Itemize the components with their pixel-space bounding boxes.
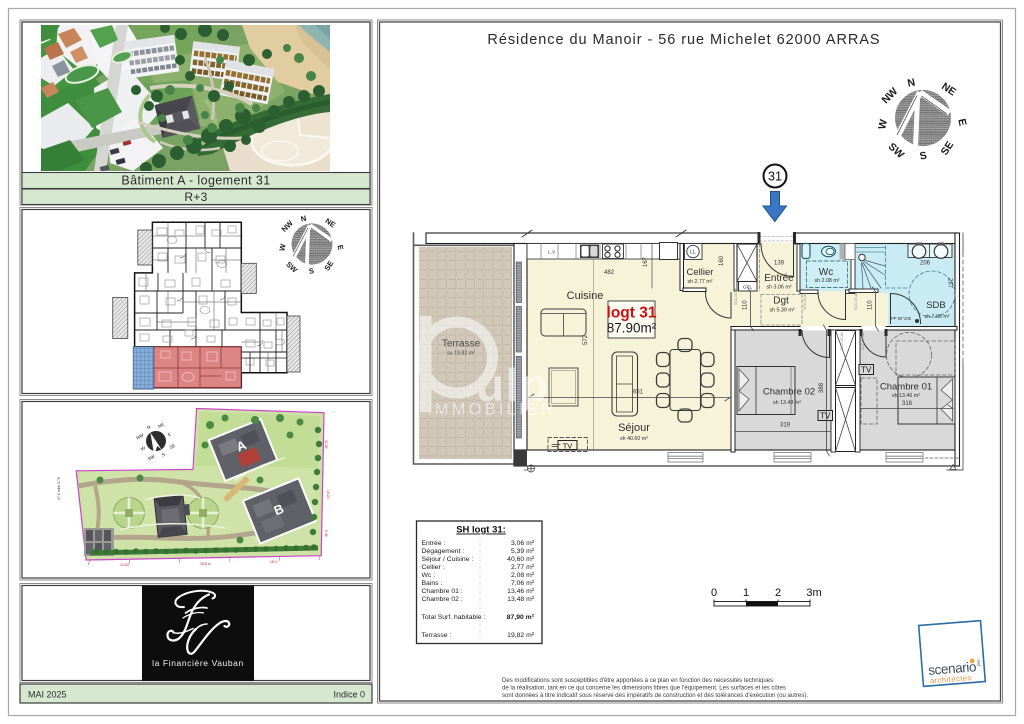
svg-text:Indice 0: Indice 0 [333, 690, 365, 700]
svg-text:SCC-06 dd: SCC-06 dd [861, 333, 865, 350]
svg-text:316: 316 [902, 401, 913, 407]
svg-text:167: 167 [643, 256, 649, 267]
svg-text:Chambre 02 :: Chambre 02 : [422, 596, 463, 603]
svg-text:SH logt 31:: SH logt 31: [456, 525, 506, 536]
svg-text:Wc :: Wc : [422, 572, 436, 579]
svg-text:IMMOBILIER: IMMOBILIER [427, 401, 556, 419]
svg-text:Dgt: Dgt [773, 296, 789, 307]
svg-text:206: 206 [920, 261, 931, 267]
svg-text:sh 13.46 m²: sh 13.46 m² [892, 393, 920, 399]
svg-text:25.8 m: 25.8 m [200, 562, 211, 566]
svg-text:Terrasse :: Terrasse : [422, 632, 452, 639]
svg-text:TV: TV [820, 412, 831, 421]
svg-text:sh 2.77 m²: sh 2.77 m² [687, 279, 712, 285]
svg-text:PP 90°205: PP 90°205 [891, 316, 912, 321]
svg-text:Bâtiment A - logement 31: Bâtiment A - logement 31 [121, 174, 270, 188]
svg-text:TV: TV [563, 441, 573, 450]
svg-text:388: 388 [819, 382, 825, 393]
svg-text:139: 139 [774, 261, 785, 267]
svg-text:Chambre 01: Chambre 01 [880, 382, 932, 393]
svg-text:LL: LL [690, 250, 696, 256]
svg-text:Entrée: Entrée [764, 273, 794, 284]
svg-text:Bains :: Bains : [422, 580, 443, 587]
svg-text:2,77 m²: 2,77 m² [511, 564, 535, 571]
svg-text:SDB: SDB [926, 300, 946, 311]
svg-text:Cellier: Cellier [687, 267, 714, 278]
svg-text:SCC-06 dd: SCC-06 dd [854, 293, 858, 310]
svg-text:110: 110 [743, 300, 749, 310]
svg-text:2,08 m²: 2,08 m² [511, 572, 535, 579]
svg-text:de la réalisation, tant en ce: de la réalisation, tant en ce qui concer… [502, 686, 786, 692]
svg-text:Résidence du Manoir - 56 rue M: Résidence du Manoir - 56 rue Michelet 62… [487, 32, 880, 48]
svg-text:sh 13.48 m²: sh 13.48 m² [773, 400, 801, 406]
svg-text:572: 572 [583, 334, 589, 345]
svg-text:L.V: L.V [548, 250, 556, 256]
svg-text:pro: pro [976, 659, 982, 666]
svg-text:19,82 m²: 19,82 m² [507, 632, 535, 639]
svg-text:1: 1 [743, 587, 749, 599]
svg-text:87,90 m²: 87,90 m² [507, 614, 535, 621]
svg-text:267: 267 [947, 278, 953, 289]
svg-text:Total Surf. habitable :: Total Surf. habitable : [422, 614, 486, 621]
svg-text:7,06 m²: 7,06 m² [511, 580, 535, 587]
svg-text:sh 2.08 m²: sh 2.08 m² [814, 278, 839, 284]
svg-text:R+3: R+3 [184, 190, 207, 204]
svg-text:Cellier :: Cellier : [422, 564, 445, 571]
svg-text:5,39 m²: 5,39 m² [511, 548, 535, 555]
svg-text:482: 482 [604, 270, 615, 276]
svg-text:Dégagement :: Dégagement : [422, 548, 465, 555]
svg-text:sh 3.06 m²: sh 3.06 m² [766, 285, 791, 291]
svg-text:sh 40.60 m²: sh 40.60 m² [620, 436, 648, 442]
svg-text:47.0 mlim 3.76: 47.0 mlim 3.76 [57, 477, 61, 500]
svg-text:Des modifications sont suscept: Des modifications sont susceptibles d'êt… [502, 678, 773, 684]
svg-text:la Financière Vauban: la Financière Vauban [152, 658, 244, 668]
svg-text:Séjour / Cuisine :: Séjour / Cuisine : [422, 556, 474, 563]
svg-text:sh 7.06 m²: sh 7.06 m² [924, 314, 949, 320]
svg-text:Chambre 02: Chambre 02 [763, 387, 815, 398]
svg-text:Terrasse: Terrasse [442, 339, 481, 350]
svg-text:13,46 m²: 13,46 m² [507, 588, 535, 595]
svg-text:Entrée :: Entrée : [422, 540, 446, 547]
svg-text:sh 5.39 m²: sh 5.39 m² [769, 308, 794, 314]
svg-text:3,06 m²: 3,06 m² [511, 540, 535, 547]
svg-text:12.53: 12.53 [120, 563, 129, 567]
svg-text:319: 319 [780, 423, 791, 429]
svg-text:18.4: 18.4 [270, 560, 277, 564]
svg-text:Wc: Wc [819, 267, 833, 278]
svg-text:su 19.82 m²: su 19.82 m² [447, 351, 475, 357]
svg-text:32.56: 32.56 [324, 440, 328, 449]
svg-text:SCC-06 dd: SCC-06 dd [803, 293, 807, 310]
svg-text:110: 110 [868, 300, 874, 310]
svg-text:2: 2 [775, 587, 781, 599]
svg-text:87.90m²: 87.90m² [607, 321, 657, 336]
svg-text:Séjour: Séjour [618, 422, 650, 434]
svg-text:Chambre 01 :: Chambre 01 : [422, 588, 463, 595]
svg-text:SCC-06 dd: SCC-06 dd [840, 333, 844, 350]
svg-text:9.46: 9.46 [324, 530, 328, 537]
svg-text:SCC-06 dd: SCC-06 dd [734, 288, 738, 305]
svg-text:0: 0 [711, 587, 717, 599]
svg-text:3m: 3m [806, 587, 821, 599]
svg-text:651: 651 [633, 390, 644, 396]
svg-text:13,48 m²: 13,48 m² [507, 596, 535, 603]
svg-text:160: 160 [719, 255, 725, 266]
svg-text:sont données à titre indicatif: sont données à titre indicatif sous rése… [502, 693, 808, 699]
svg-text:31: 31 [768, 170, 782, 184]
svg-text:40,60 m²: 40,60 m² [507, 556, 535, 563]
svg-text:Cuisine: Cuisine [567, 290, 604, 302]
svg-text:logt 31: logt 31 [607, 305, 657, 322]
svg-text:TV: TV [861, 366, 872, 375]
svg-text:MAI 2025: MAI 2025 [28, 690, 67, 700]
svg-text:18.23: 18.23 [326, 490, 330, 499]
